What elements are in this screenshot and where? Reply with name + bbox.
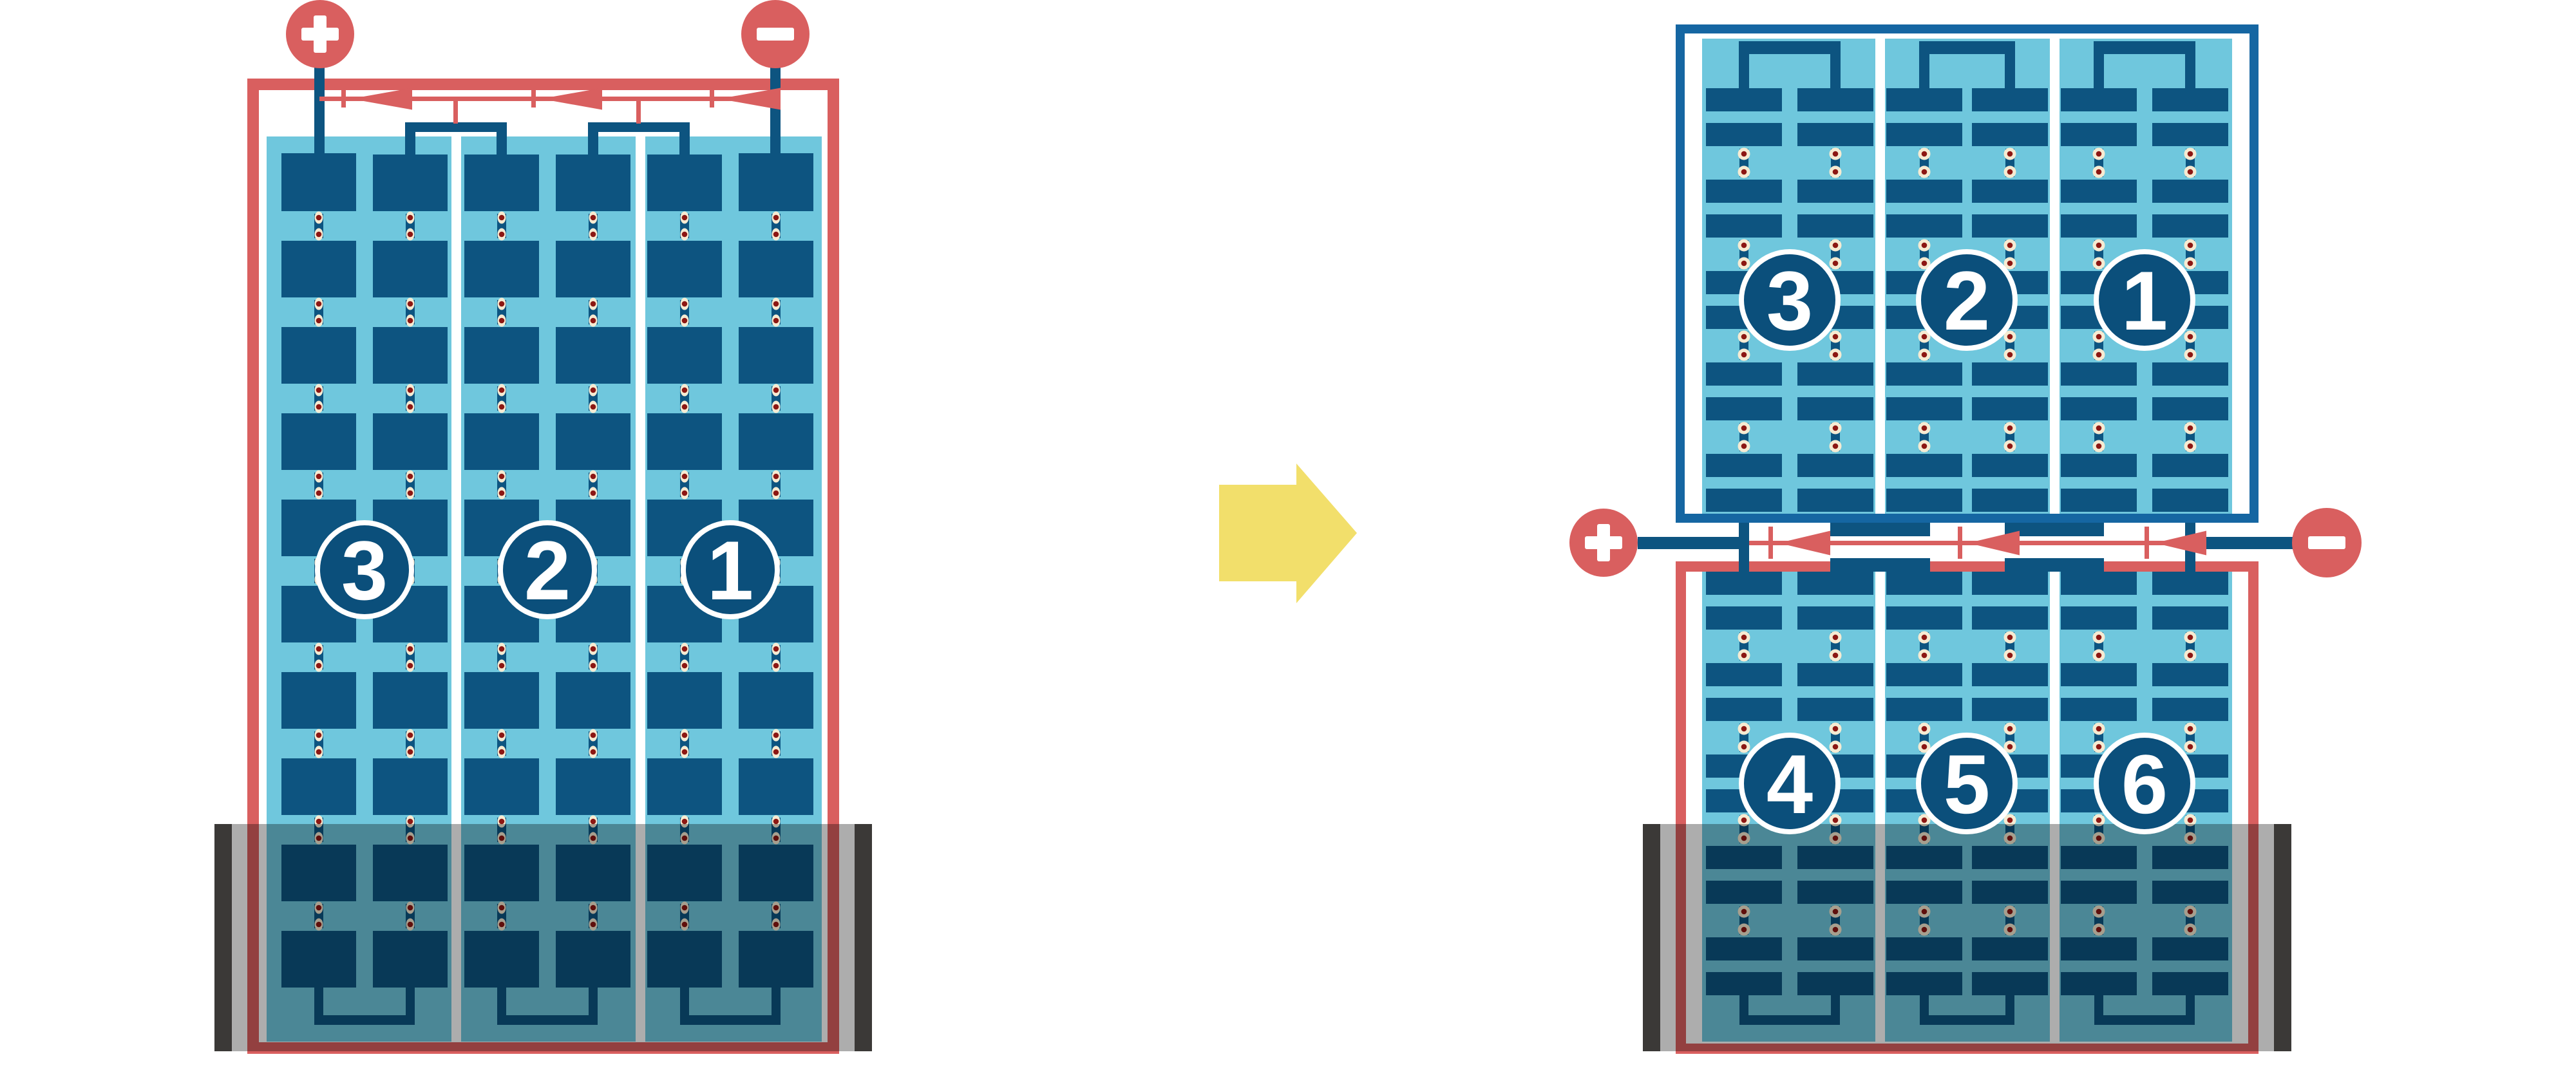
connector-dot xyxy=(1922,151,1927,157)
cell-number-badge: 6 xyxy=(2096,735,2193,832)
battery-plate xyxy=(2061,214,2137,238)
battery-plate xyxy=(2152,698,2228,721)
left-battery: 321 xyxy=(214,0,872,1054)
battery-plate xyxy=(2061,123,2137,146)
connector-dot xyxy=(2188,744,2193,750)
battery-plate xyxy=(1886,362,1962,386)
current-arrow-tick xyxy=(2145,527,2149,559)
connector-dot xyxy=(316,663,322,669)
connector-dot xyxy=(499,646,505,652)
connector-dot xyxy=(773,215,779,221)
battery-plate xyxy=(739,327,813,384)
connector-dot xyxy=(773,474,779,480)
connector-dot xyxy=(591,646,596,652)
connector-dot xyxy=(408,318,413,324)
battery-plate xyxy=(1706,214,1782,238)
connector-dot xyxy=(2188,334,2193,340)
battery-plate xyxy=(1972,572,2048,595)
battery-plate xyxy=(556,672,630,729)
connector-dot xyxy=(1741,635,1747,641)
battery-plate xyxy=(373,241,448,297)
battery-plate xyxy=(1797,123,1873,146)
battery-plate xyxy=(1706,362,1782,386)
connector-dot xyxy=(1833,169,1839,175)
battery-plate xyxy=(281,672,356,729)
connector-dot xyxy=(499,215,505,221)
connector-dot xyxy=(499,301,505,307)
connector-dot xyxy=(1833,726,1839,732)
top-bus-leg xyxy=(679,132,690,155)
connector-dot xyxy=(2096,744,2102,750)
connector-dot xyxy=(773,733,779,738)
top-unit-jumper-bar xyxy=(1830,523,1930,536)
battery-plate xyxy=(1886,214,1962,238)
connector-dot xyxy=(1741,169,1747,175)
connector-dot xyxy=(591,388,596,393)
cell-number-label: 5 xyxy=(1944,737,1990,831)
connector-dot xyxy=(2188,151,2193,157)
top-bus-leg xyxy=(2094,54,2104,88)
cell-number-badge: 4 xyxy=(1741,735,1838,832)
plus-terminal xyxy=(286,0,354,68)
connector-dot xyxy=(2188,261,2193,267)
battery-plate xyxy=(1706,88,1782,111)
battery-plate xyxy=(556,241,630,297)
battery-plate xyxy=(281,758,356,815)
connector-dot xyxy=(316,404,322,410)
connector-dot xyxy=(591,232,596,238)
connector-dot xyxy=(408,646,413,652)
connector-dot xyxy=(1922,261,1927,267)
battery-plate xyxy=(1797,663,1873,686)
plus-icon-vertical-bar xyxy=(314,15,327,53)
battery-plate xyxy=(739,241,813,297)
connector-dot xyxy=(682,404,688,410)
connector-dot xyxy=(591,215,596,221)
battery-plate xyxy=(464,327,539,384)
battery-plate xyxy=(373,155,448,211)
connector-dot xyxy=(408,749,413,755)
case-side-bar xyxy=(2274,824,2291,1051)
top-bus-leg xyxy=(497,132,507,155)
battery-plate xyxy=(2061,88,2137,111)
current-arrow-tick xyxy=(710,89,714,108)
top-bus-leg xyxy=(2005,54,2015,88)
top-bus-bar xyxy=(1739,41,1841,54)
connector-dot xyxy=(1741,818,1747,823)
plus-terminal xyxy=(1569,509,1638,577)
battery-plate xyxy=(1797,180,1873,203)
battery-plate xyxy=(1972,214,2048,238)
connector-dot xyxy=(1922,653,1927,659)
case-overlay xyxy=(214,824,872,1051)
cell-number-label: 1 xyxy=(707,523,753,617)
connector-dot xyxy=(2188,169,2193,175)
connector-dot xyxy=(2096,334,2102,340)
top-bus-leg xyxy=(588,132,598,155)
cell-number-badge: 3 xyxy=(1741,252,1838,348)
unit-link-bar xyxy=(1739,523,1749,572)
connector-dot xyxy=(773,819,779,825)
battery-plate xyxy=(2061,397,2137,420)
battery-plate xyxy=(373,672,448,729)
connector-dot xyxy=(2007,426,2013,431)
connector-dot xyxy=(2096,169,2102,175)
connector-dot xyxy=(2188,726,2193,732)
bottom-unit-jumper-bar xyxy=(2005,558,2104,572)
connector-dot xyxy=(1922,352,1927,358)
plus-icon-vertical-bar xyxy=(1597,524,1610,561)
battery-plate xyxy=(1706,454,1782,477)
positive-terminal-wire-tbar xyxy=(281,153,356,163)
connector-dot xyxy=(1741,261,1747,267)
connector-dot xyxy=(499,232,505,238)
connector-dot xyxy=(408,215,413,221)
cell-number-badge: 3 xyxy=(317,523,412,617)
battery-plate xyxy=(1797,88,1873,111)
connector-dot xyxy=(682,232,688,238)
connector-dot xyxy=(2188,653,2193,659)
battery-plate xyxy=(1797,397,1873,420)
cell-group-separator xyxy=(2050,39,2060,514)
connector-dot xyxy=(2007,261,2013,267)
cell-number-badge: 5 xyxy=(1918,735,2015,832)
connector-dot xyxy=(682,663,688,669)
battery-plate xyxy=(2152,572,2228,595)
battery-plate xyxy=(1797,362,1873,386)
cell-number-label: 2 xyxy=(1944,254,1990,348)
connector-dot xyxy=(1741,334,1747,340)
battery-plate xyxy=(556,155,630,211)
battery-plate xyxy=(647,413,722,470)
connector-dot xyxy=(499,474,505,480)
battery-plate xyxy=(1706,698,1782,721)
connector-dot xyxy=(499,749,505,755)
battery-plate xyxy=(464,155,539,211)
negative-terminal-wire xyxy=(2195,537,2293,549)
connector-dot xyxy=(1922,426,1927,431)
battery-plate xyxy=(647,155,722,211)
battery-plate xyxy=(1797,572,1873,595)
connector-dot xyxy=(2096,426,2102,431)
connector-dot xyxy=(2096,444,2102,449)
connector-dot xyxy=(1922,818,1927,823)
negative-terminal-wire-tbar xyxy=(739,153,813,163)
connector-dot xyxy=(591,749,596,755)
connector-dot xyxy=(316,318,322,324)
connector-dot xyxy=(591,663,596,669)
connector-dot xyxy=(773,318,779,324)
battery-plate xyxy=(2152,606,2228,630)
connector-dot xyxy=(2007,744,2013,750)
connector-dot xyxy=(773,232,779,238)
connector-dot xyxy=(1922,744,1927,750)
connector-dot xyxy=(773,491,779,496)
connector-dot xyxy=(2096,818,2102,823)
connector-dot xyxy=(2188,243,2193,248)
battery-plate xyxy=(2061,663,2137,686)
connector-dot xyxy=(2188,444,2193,449)
connector-dot xyxy=(1833,444,1839,449)
connector-dot xyxy=(1741,151,1747,157)
battery-plate xyxy=(281,413,356,470)
battery-plate xyxy=(2152,489,2228,512)
top-bus-bar xyxy=(2094,41,2195,54)
battery-plate xyxy=(2061,454,2137,477)
current-arrow-tick xyxy=(341,89,346,108)
cell-group-separator xyxy=(1875,39,1885,514)
connector-dot xyxy=(1741,243,1747,248)
connector-dot xyxy=(591,819,596,825)
battery-plate xyxy=(1886,454,1962,477)
connector-dot xyxy=(591,301,596,307)
connector-dot xyxy=(499,404,505,410)
minus-terminal xyxy=(741,0,810,68)
connector-dot xyxy=(316,232,322,238)
connector-dot xyxy=(1833,334,1839,340)
battery-diagram: 321321456 xyxy=(0,0,2576,1068)
connector-dot xyxy=(682,733,688,738)
connector-dot xyxy=(682,819,688,825)
connector-dot xyxy=(1922,169,1927,175)
connector-dot xyxy=(408,663,413,669)
connector-dot xyxy=(1833,744,1839,750)
connector-dot xyxy=(408,404,413,410)
connector-dot xyxy=(1922,635,1927,641)
connector-dot xyxy=(408,491,413,496)
connector-dot xyxy=(682,388,688,393)
battery-plate xyxy=(647,672,722,729)
connector-dot xyxy=(316,215,322,221)
connector-dot xyxy=(773,749,779,755)
battery-plate xyxy=(556,327,630,384)
connector-dot xyxy=(316,819,322,825)
connector-dot xyxy=(408,733,413,738)
battery-plate xyxy=(2061,572,2137,595)
battery-plate xyxy=(2152,214,2228,238)
connector-dot xyxy=(773,404,779,410)
connector-dot xyxy=(2007,444,2013,449)
cell-number-badge: 1 xyxy=(683,523,777,617)
battery-plate xyxy=(373,413,448,470)
connector-dot xyxy=(2188,818,2193,823)
battery-plate xyxy=(2152,88,2228,111)
connector-dot xyxy=(1833,261,1839,267)
battery-plate xyxy=(556,758,630,815)
battery-plate xyxy=(739,758,813,815)
case-side-bar xyxy=(214,824,232,1051)
connector-dot xyxy=(1741,653,1747,659)
connector-dot xyxy=(591,474,596,480)
connector-dot xyxy=(1741,352,1747,358)
battery-plate xyxy=(739,163,813,211)
cell-number-label: 3 xyxy=(1766,254,1813,348)
battery-plate xyxy=(2061,180,2137,203)
connector-dot xyxy=(499,819,505,825)
battery-plate xyxy=(2152,362,2228,386)
connector-dot xyxy=(408,819,413,825)
battery-diagram-canvas: 321321456 xyxy=(0,0,2576,1068)
connector-dot xyxy=(408,388,413,393)
battery-plate xyxy=(1706,123,1782,146)
connector-dot xyxy=(316,301,322,307)
battery-plate xyxy=(373,327,448,384)
battery-plate xyxy=(647,327,722,384)
connector-dot xyxy=(2188,426,2193,431)
connector-dot xyxy=(499,733,505,738)
connector-dot xyxy=(2007,334,2013,340)
case-side-bar xyxy=(855,824,872,1051)
connector-dot xyxy=(408,474,413,480)
cell-number-badge: 2 xyxy=(500,523,594,617)
battery-plate xyxy=(464,241,539,297)
connector-dot xyxy=(682,474,688,480)
cell-number-badge: 1 xyxy=(2096,252,2193,348)
connector-dot xyxy=(2007,151,2013,157)
battery-plate xyxy=(647,241,722,297)
connector-dot xyxy=(2007,352,2013,358)
positive-terminal-wire xyxy=(1638,537,1739,549)
cell-number-label: 6 xyxy=(2121,737,2168,831)
battery-plate xyxy=(739,413,813,470)
connector-dot xyxy=(499,318,505,324)
connector-dot xyxy=(1833,818,1839,823)
battery-plate xyxy=(1797,698,1873,721)
top-bus-leg xyxy=(1830,54,1841,88)
cell-number-label: 4 xyxy=(1766,737,1813,831)
connector-dot xyxy=(682,646,688,652)
battery-plate xyxy=(464,758,539,815)
connector-dot xyxy=(2096,653,2102,659)
top-bus-bar xyxy=(588,122,690,132)
connector-dot xyxy=(2096,261,2102,267)
battery-plate xyxy=(464,672,539,729)
connector-dot xyxy=(499,388,505,393)
cell-number-badge: 2 xyxy=(1918,252,2015,348)
battery-plate xyxy=(1886,88,1962,111)
connector-dot xyxy=(1741,426,1747,431)
battery-plate xyxy=(1972,698,2048,721)
connector-dot xyxy=(316,474,322,480)
case-overlay xyxy=(1643,824,2291,1051)
connector-dot xyxy=(1741,444,1747,449)
battery-plate xyxy=(1706,663,1782,686)
minus-icon xyxy=(757,28,794,41)
connector-dot xyxy=(2188,352,2193,358)
battery-plate xyxy=(1706,397,1782,420)
right-battery-top-unit: 321 xyxy=(1680,29,2254,518)
connector-dot xyxy=(1833,653,1839,659)
minus-terminal xyxy=(2292,508,2362,577)
connector-dot xyxy=(1741,726,1747,732)
battery-plate xyxy=(1886,663,1962,686)
current-arrow-tick xyxy=(1768,527,1773,559)
connector-dot xyxy=(773,301,779,307)
battery-plate xyxy=(1886,606,1962,630)
battery-plate xyxy=(1972,362,2048,386)
connector-dot xyxy=(682,215,688,221)
battery-plate xyxy=(1706,606,1782,630)
top-bus-bar xyxy=(405,122,507,132)
battery-plate xyxy=(2061,606,2137,630)
connector-dot xyxy=(2096,726,2102,732)
connector-dot xyxy=(2096,151,2102,157)
current-arrow-tick xyxy=(1958,527,1962,559)
connector-dot xyxy=(408,301,413,307)
battery-plate xyxy=(2152,123,2228,146)
connector-dot xyxy=(316,491,322,496)
connector-dot xyxy=(499,663,505,669)
top-bus-bar xyxy=(1919,41,2015,54)
battery-plate xyxy=(1797,606,1873,630)
connector-dot xyxy=(591,491,596,496)
connector-dot xyxy=(591,404,596,410)
connector-dot xyxy=(316,388,322,393)
current-dropper xyxy=(636,101,641,124)
battery-plate xyxy=(1886,397,1962,420)
top-bus-leg xyxy=(2185,54,2195,88)
connector-dot xyxy=(591,733,596,738)
battery-plate xyxy=(2061,362,2137,386)
current-dropper xyxy=(453,101,458,124)
battery-plate xyxy=(1797,489,1873,512)
bottom-unit-jumper-bar xyxy=(1830,558,1930,572)
battery-plate xyxy=(281,241,356,297)
battery-plate xyxy=(1972,180,2048,203)
battery-plate xyxy=(556,413,630,470)
battery-plate xyxy=(1886,489,1962,512)
battery-plate xyxy=(1797,454,1873,477)
connector-dot xyxy=(2188,635,2193,641)
connector-dot xyxy=(682,749,688,755)
battery-plate xyxy=(1706,572,1782,595)
cell-number-label: 1 xyxy=(2121,254,2168,348)
connector-dot xyxy=(1922,334,1927,340)
battery-plate xyxy=(373,758,448,815)
connector-dot xyxy=(773,388,779,393)
connector-dot xyxy=(2007,818,2013,823)
connector-dot xyxy=(1833,635,1839,641)
connector-dot xyxy=(773,646,779,652)
connector-dot xyxy=(591,318,596,324)
battery-plate xyxy=(2061,489,2137,512)
battery-plate xyxy=(464,413,539,470)
connector-dot xyxy=(682,318,688,324)
connector-dot xyxy=(1833,151,1839,157)
battery-plate xyxy=(1886,698,1962,721)
battery-plate xyxy=(1886,123,1962,146)
battery-plate xyxy=(1797,214,1873,238)
battery-plate xyxy=(1706,489,1782,512)
connector-dot xyxy=(316,749,322,755)
connector-dot xyxy=(773,663,779,669)
battery-plate xyxy=(1886,180,1962,203)
top-bus-leg xyxy=(405,132,415,155)
battery-plate xyxy=(647,758,722,815)
battery-plate xyxy=(739,672,813,729)
connector-dot xyxy=(1922,444,1927,449)
cell-number-label: 2 xyxy=(524,523,571,617)
battery-plate xyxy=(1972,606,2048,630)
connector-dot xyxy=(1741,744,1747,750)
connector-dot xyxy=(1922,243,1927,248)
cell-number-label: 3 xyxy=(341,523,388,617)
connector-dot xyxy=(682,301,688,307)
battery-plate xyxy=(2152,454,2228,477)
case-side-bar xyxy=(1643,824,1660,1051)
connector-dot xyxy=(1833,352,1839,358)
battery-plate xyxy=(2152,397,2228,420)
